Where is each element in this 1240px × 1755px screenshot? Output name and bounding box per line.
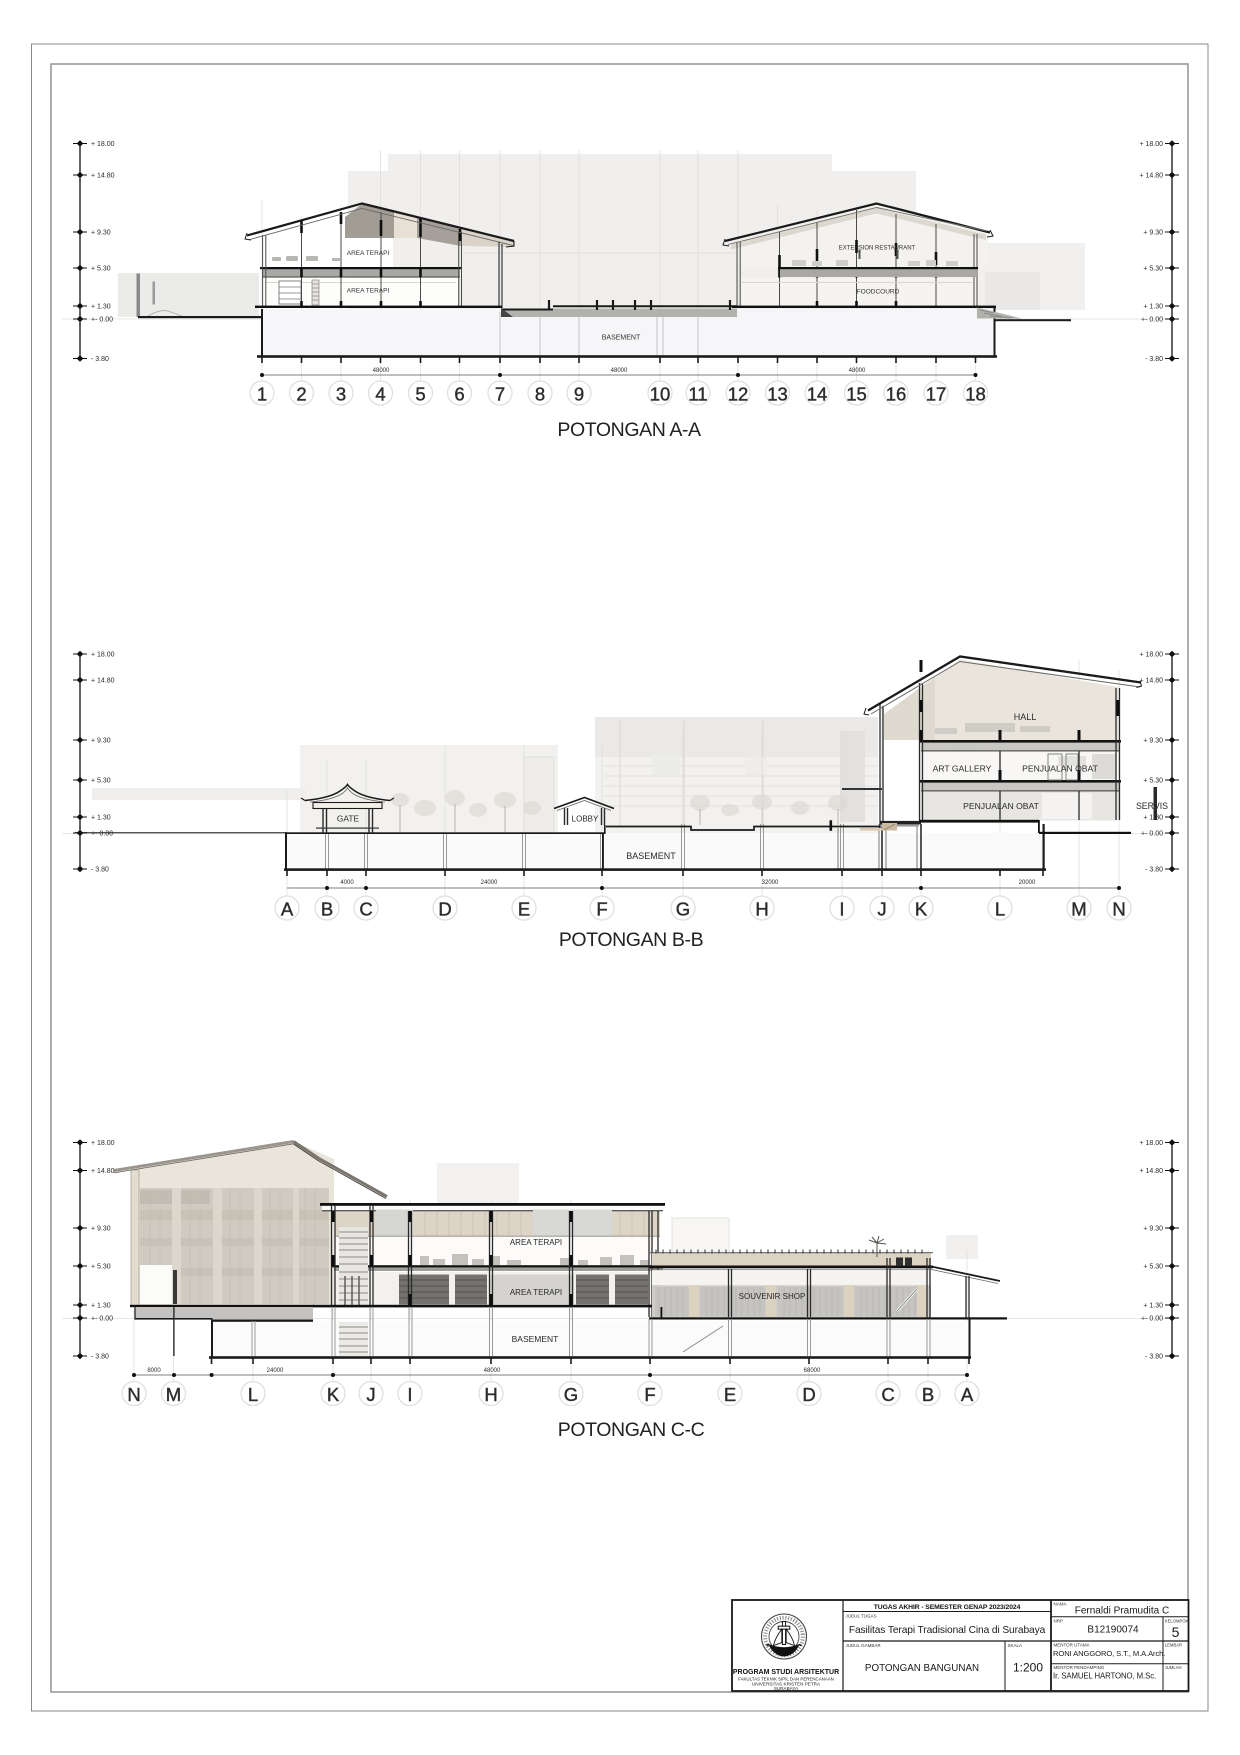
- svg-text:MENTOR UTAMA: MENTOR UTAMA: [1054, 1643, 1090, 1648]
- svg-text:+ 9.30: + 9.30: [1143, 738, 1163, 745]
- svg-text:MENTOR PENDAMPING: MENTOR PENDAMPING: [1054, 1665, 1105, 1670]
- svg-text:48000: 48000: [611, 368, 628, 374]
- svg-text:+ 1.30: + 1.30: [91, 1303, 111, 1310]
- svg-text:POTONGAN A-A: POTONGAN A-A: [557, 419, 701, 441]
- svg-text:C: C: [881, 1384, 894, 1405]
- svg-text:E: E: [724, 1384, 736, 1405]
- svg-text:9: 9: [574, 384, 584, 405]
- svg-text:PENJUALAN OBAT: PENJUALAN OBAT: [1022, 764, 1099, 774]
- svg-text:AREA TERAPI: AREA TERAPI: [510, 1238, 562, 1247]
- svg-text:+ 5.30: + 5.30: [1143, 778, 1163, 785]
- svg-text:3: 3: [336, 384, 346, 405]
- svg-text:POTONGAN C-C: POTONGAN C-C: [558, 1419, 705, 1441]
- svg-text:+- 0.00: +- 0.00: [91, 1316, 113, 1323]
- svg-text:48000: 48000: [849, 368, 866, 374]
- svg-text:SOUVENIR SHOP: SOUVENIR SHOP: [739, 1292, 806, 1301]
- svg-text:NRP: NRP: [1054, 1619, 1064, 1624]
- svg-text:EXTENSION RESTAURANT: EXTENSION RESTAURANT: [839, 246, 916, 252]
- svg-text:BASEMENT: BASEMENT: [626, 851, 676, 861]
- svg-text:J: J: [366, 1384, 375, 1405]
- svg-text:G: G: [564, 1384, 578, 1405]
- svg-text:8: 8: [535, 384, 545, 405]
- svg-text:SURABAYA: SURABAYA: [774, 1686, 799, 1691]
- svg-text:+ 5.30: + 5.30: [91, 778, 111, 785]
- svg-text:14: 14: [807, 384, 828, 405]
- svg-text:B: B: [321, 899, 333, 920]
- svg-text:F: F: [596, 899, 607, 920]
- svg-text:F: F: [644, 1384, 655, 1405]
- svg-text:16: 16: [886, 384, 907, 405]
- svg-text:32000: 32000: [762, 880, 779, 886]
- svg-text:48000: 48000: [373, 368, 390, 374]
- svg-text:B12190074: B12190074: [1087, 1625, 1139, 1636]
- svg-text:15: 15: [846, 384, 867, 405]
- svg-text:TUGAS AKHIR - SEMESTER GENAP 2: TUGAS AKHIR - SEMESTER GENAP 2023/2024: [874, 1604, 1021, 1611]
- svg-text:L: L: [995, 899, 1005, 920]
- svg-text:LEMBAR: LEMBAR: [1165, 1643, 1182, 1648]
- svg-text:Ir. SAMUEL HARTONO, M.Sc.: Ir. SAMUEL HARTONO, M.Sc.: [1053, 1672, 1156, 1681]
- svg-text:J: J: [877, 899, 886, 920]
- svg-text:+- 0.00: +- 0.00: [1141, 317, 1163, 324]
- svg-text:+ 18.00: + 18.00: [1139, 141, 1163, 148]
- svg-text:4000: 4000: [340, 880, 354, 886]
- svg-text:6: 6: [454, 384, 464, 405]
- svg-text:H: H: [755, 899, 768, 920]
- svg-text:10: 10: [650, 384, 671, 405]
- svg-text:+ 14.80: + 14.80: [91, 678, 115, 685]
- svg-text:+ 9.30: + 9.30: [91, 230, 111, 237]
- svg-text:L: L: [248, 1384, 258, 1405]
- svg-text:GATE: GATE: [337, 814, 360, 824]
- svg-text:- 3.80: - 3.80: [1145, 867, 1163, 874]
- svg-text:C: C: [359, 899, 372, 920]
- svg-text:JUDUL TUGAS: JUDUL TUGAS: [846, 1614, 877, 1619]
- svg-text:+ 14.80: + 14.80: [1139, 173, 1163, 180]
- svg-text:D: D: [438, 899, 451, 920]
- svg-text:M: M: [166, 1384, 181, 1405]
- svg-text:BASEMENT: BASEMENT: [602, 335, 641, 342]
- svg-text:H: H: [484, 1384, 497, 1405]
- svg-text:RONI ANGGORO, S.T., M.A.Arch.: RONI ANGGORO, S.T., M.A.Arch.: [1053, 1649, 1165, 1658]
- svg-text:FOODCOURD: FOODCOURD: [857, 289, 900, 296]
- svg-text:POTONGAN B-B: POTONGAN B-B: [559, 929, 703, 951]
- svg-text:- 3.80: - 3.80: [1145, 1354, 1163, 1361]
- svg-text:- 3.80: - 3.80: [1145, 356, 1163, 363]
- svg-text:AREA TERAPI: AREA TERAPI: [510, 1288, 562, 1297]
- svg-text:SKALA: SKALA: [1008, 1643, 1023, 1648]
- svg-text:N: N: [127, 1384, 140, 1405]
- svg-text:5: 5: [1172, 1624, 1180, 1640]
- svg-text:+ 1.30: + 1.30: [1143, 1303, 1163, 1310]
- svg-text:G: G: [676, 899, 690, 920]
- svg-text:+ 1.30: + 1.30: [91, 304, 111, 311]
- svg-text:13: 13: [767, 384, 788, 405]
- svg-text:+ 18.00: + 18.00: [1139, 1140, 1163, 1147]
- svg-text:PROGRAM STUDI ARSITEKTUR: PROGRAM STUDI ARSITEKTUR: [733, 1669, 839, 1676]
- svg-text:D: D: [802, 1384, 815, 1405]
- svg-text:+- 0.00: +- 0.00: [91, 831, 113, 838]
- svg-text:+- 0.00: +- 0.00: [91, 317, 113, 324]
- svg-text:JUMLAH: JUMLAH: [1165, 1665, 1182, 1670]
- svg-text:+ 1.30: + 1.30: [1143, 815, 1163, 822]
- svg-text:KELOMPOK: KELOMPOK: [1165, 1619, 1189, 1624]
- svg-text:+ 14.80: + 14.80: [1139, 678, 1163, 685]
- svg-text:20000: 20000: [1019, 880, 1036, 886]
- svg-text:- 3.80: - 3.80: [91, 867, 109, 874]
- svg-text:+ 18.00: + 18.00: [91, 141, 115, 148]
- svg-text:A: A: [281, 899, 294, 920]
- svg-text:Fasilitas Terapi Tradisional C: Fasilitas Terapi Tradisional Cina di Sur…: [849, 1625, 1046, 1636]
- svg-text:+ 14.80: + 14.80: [91, 1168, 115, 1175]
- svg-text:+ 1.30: + 1.30: [91, 815, 111, 822]
- svg-text:18: 18: [965, 384, 986, 405]
- svg-text:SERVIS: SERVIS: [1136, 801, 1168, 811]
- svg-text:+ 5.30: + 5.30: [1143, 266, 1163, 273]
- svg-text:- 3.80: - 3.80: [91, 1354, 109, 1361]
- svg-text:2: 2: [296, 384, 306, 405]
- svg-text:LOBBY: LOBBY: [572, 815, 599, 824]
- svg-text:4: 4: [375, 384, 385, 405]
- svg-text:AREA TERAPI: AREA TERAPI: [347, 288, 390, 295]
- svg-text:11: 11: [688, 384, 707, 405]
- svg-text:- 3.80: - 3.80: [91, 356, 109, 363]
- svg-text:+ 14.80: + 14.80: [1139, 1168, 1163, 1175]
- svg-text:M: M: [1071, 899, 1086, 920]
- svg-text:PENJUALAN OBAT: PENJUALAN OBAT: [963, 801, 1040, 811]
- svg-text:+ 9.30: + 9.30: [1143, 1226, 1163, 1233]
- svg-text:N: N: [1112, 899, 1125, 920]
- svg-text:+ 18.00: + 18.00: [91, 1140, 115, 1147]
- svg-text:+ 18.00: + 18.00: [91, 652, 115, 659]
- svg-text:8000: 8000: [147, 1368, 161, 1374]
- svg-text:Fernaldi Pramudita C: Fernaldi Pramudita C: [1075, 1606, 1169, 1617]
- svg-text:+ 5.30: + 5.30: [1143, 1264, 1163, 1271]
- svg-text:HALL: HALL: [1014, 712, 1037, 722]
- svg-text:ART GALLERY: ART GALLERY: [933, 764, 992, 774]
- svg-text:17: 17: [926, 384, 947, 405]
- svg-text:24000: 24000: [267, 1368, 284, 1374]
- svg-text:B: B: [922, 1384, 934, 1405]
- svg-text:+- 0.00: +- 0.00: [1141, 1316, 1163, 1323]
- svg-text:POTONGAN BANGUNAN: POTONGAN BANGUNAN: [865, 1663, 979, 1674]
- svg-text:E: E: [518, 899, 530, 920]
- svg-text:BASEMENT: BASEMENT: [512, 1334, 559, 1344]
- svg-text:K: K: [327, 1384, 340, 1405]
- svg-text:68000: 68000: [804, 1368, 821, 1374]
- svg-text:AREA TERAPI: AREA TERAPI: [347, 250, 390, 257]
- svg-text:24000: 24000: [481, 880, 498, 886]
- svg-text:NAMA: NAMA: [1054, 1602, 1067, 1607]
- svg-text:+ 14.80: + 14.80: [91, 173, 115, 180]
- svg-text:+ 9.30: + 9.30: [1143, 230, 1163, 237]
- svg-text:A: A: [961, 1384, 974, 1405]
- svg-text:48000: 48000: [484, 1368, 501, 1374]
- svg-text:+ 9.30: + 9.30: [91, 1226, 111, 1233]
- svg-text:+ 9.30: + 9.30: [91, 738, 111, 745]
- svg-text:12: 12: [728, 384, 749, 405]
- svg-text:+ 5.30: + 5.30: [91, 266, 111, 273]
- svg-text:+ 18.00: + 18.00: [1139, 652, 1163, 659]
- svg-text:7: 7: [495, 384, 505, 405]
- svg-text:JUDUL GAMBAR: JUDUL GAMBAR: [846, 1643, 882, 1648]
- svg-text:I: I: [839, 899, 844, 920]
- svg-text:5: 5: [415, 384, 425, 405]
- svg-text:+ 5.30: + 5.30: [91, 1264, 111, 1271]
- svg-text:I: I: [407, 1384, 412, 1405]
- svg-text:K: K: [915, 899, 928, 920]
- svg-text:+- 0.00: +- 0.00: [1141, 831, 1163, 838]
- svg-text:+ 1.30: + 1.30: [1143, 304, 1163, 311]
- svg-text:1: 1: [257, 384, 267, 405]
- svg-text:1:200: 1:200: [1013, 1661, 1043, 1675]
